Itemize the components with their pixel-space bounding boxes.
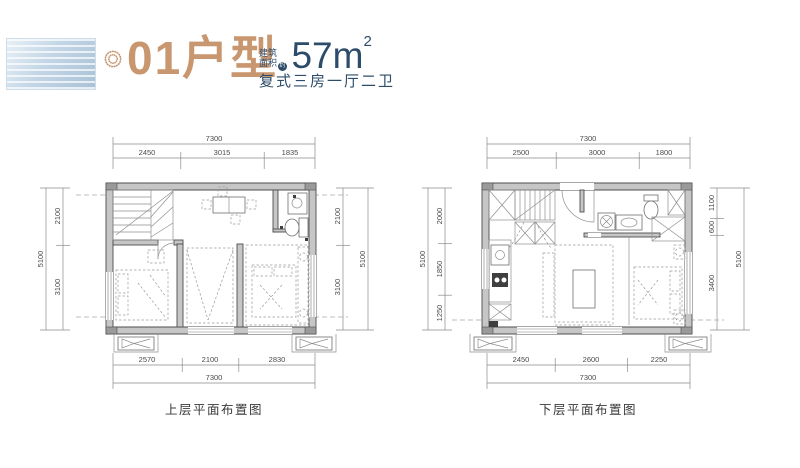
svg-text:3000: 3000	[589, 148, 606, 157]
toilet-tank-icon	[299, 218, 308, 237]
outer-walls	[482, 183, 692, 334]
svg-text:1800: 1800	[656, 148, 673, 157]
logo-stripes	[7, 39, 95, 89]
svg-text:2250: 2250	[651, 355, 668, 364]
staircase-icon	[489, 190, 555, 220]
bed-icon	[246, 245, 309, 325]
layout-subtitle: 复式三房一厅二卫	[259, 70, 395, 91]
svg-text:3015: 3015	[214, 148, 231, 157]
svg-text:1100: 1100	[707, 195, 716, 211]
lower-dims-right: 1100 600 3400 5100	[707, 188, 750, 330]
svg-text:2100: 2100	[202, 355, 219, 364]
sink-icon	[616, 215, 642, 230]
bathroom-fixtures	[280, 193, 308, 241]
svg-text:7300: 7300	[580, 373, 597, 382]
area-superscript: 2	[363, 35, 371, 49]
svg-text:1250: 1250	[435, 305, 444, 322]
lower-floor-plan: 7300 2500 3000 1800 2450 2600 2250 7300 …	[412, 125, 762, 425]
pier	[305, 327, 316, 334]
staircase-icon	[113, 190, 173, 240]
svg-text:5100: 5100	[418, 251, 427, 268]
upper-dims-bottom: 2570 2100 2830 7300	[113, 353, 315, 389]
sink-icon	[288, 193, 307, 214]
upper-dims-right: 2100 3100 5100	[333, 188, 374, 330]
svg-text:1835: 1835	[282, 148, 299, 157]
svg-text:5100: 5100	[734, 251, 743, 268]
area-note: 建筑 面积约	[259, 48, 287, 71]
toilet-tank-icon	[644, 195, 658, 201]
bathroom-wall	[273, 190, 278, 232]
void-area	[187, 248, 233, 323]
pier	[106, 183, 117, 190]
svg-text:2000: 2000	[435, 208, 444, 225]
svg-text:2450: 2450	[513, 355, 530, 364]
bathroom-fixtures	[580, 190, 660, 237]
unit-title: 01户型	[127, 32, 278, 84]
floorplan-page: 01户型 建筑 面积约 57m2 复式三房一厅二卫 7300 2450 3015…	[0, 0, 800, 468]
bed-icon	[116, 250, 168, 320]
svg-text:2100: 2100	[333, 208, 342, 225]
dining-table-icon	[202, 187, 256, 224]
lower-plan-caption: 下层平面布置图	[539, 403, 637, 417]
svg-text:5100: 5100	[36, 251, 45, 268]
pier	[681, 183, 692, 190]
bed-icon	[634, 267, 682, 319]
svg-text:2830: 2830	[269, 355, 286, 364]
upper-plan-caption: 上层平面布置图	[165, 403, 263, 417]
interior-wall	[177, 244, 183, 327]
lower-dims-left: 5100 2000 1850 1250	[418, 188, 452, 330]
svg-text:600: 600	[707, 221, 716, 234]
lower-dims-top: 7300 2500 3000 1800	[487, 134, 690, 169]
svg-text:3100: 3100	[333, 279, 342, 296]
svg-text:7300: 7300	[580, 134, 597, 143]
toilet-icon	[285, 219, 299, 236]
coffee-table-icon	[573, 270, 595, 308]
ac-unit-icon	[292, 334, 336, 352]
ac-unit-icon	[470, 334, 516, 352]
sofa-icon	[543, 253, 554, 317]
svg-text:2570: 2570	[139, 355, 156, 364]
svg-text:5100: 5100	[358, 251, 367, 268]
entry-door-arc	[562, 190, 594, 222]
svg-text:7300: 7300	[206, 373, 223, 382]
lower-dims-bottom: 2450 2600 2250 7300	[487, 353, 690, 389]
pier	[482, 327, 493, 334]
pier	[681, 327, 692, 334]
svg-text:2450: 2450	[139, 148, 156, 157]
logo-block	[6, 38, 96, 90]
sun-icon	[103, 49, 123, 69]
living-room-icons	[543, 245, 613, 325]
interior-wall	[237, 244, 243, 327]
windows	[482, 183, 692, 334]
upper-floor-plan: 7300 2450 3015 1835 2570 2100 2830 7300 …	[30, 125, 380, 425]
door-arc	[158, 243, 174, 259]
pier	[305, 183, 316, 190]
svg-text:2600: 2600	[583, 355, 600, 364]
ac-unit-icon	[114, 334, 158, 352]
svg-text:2100: 2100	[53, 208, 62, 225]
upper-dims-top: 7300 2450 3015 1835	[113, 134, 315, 169]
interior-wall	[113, 240, 158, 245]
bedroom-icons	[629, 237, 685, 325]
ac-unit-icon	[665, 334, 711, 352]
pier	[106, 327, 117, 334]
svg-text:3100: 3100	[53, 279, 62, 296]
svg-text:3400: 3400	[707, 275, 716, 292]
pier	[482, 183, 493, 190]
upper-dims-left: 5100 2100 3100	[36, 188, 70, 330]
kitchen-sink-icon	[491, 245, 509, 265]
svg-text:2500: 2500	[513, 148, 530, 157]
svg-text:7300: 7300	[206, 134, 223, 143]
toilet-icon	[644, 201, 658, 219]
svg-text:1850: 1850	[435, 261, 444, 278]
cabinet-icon	[515, 222, 555, 244]
